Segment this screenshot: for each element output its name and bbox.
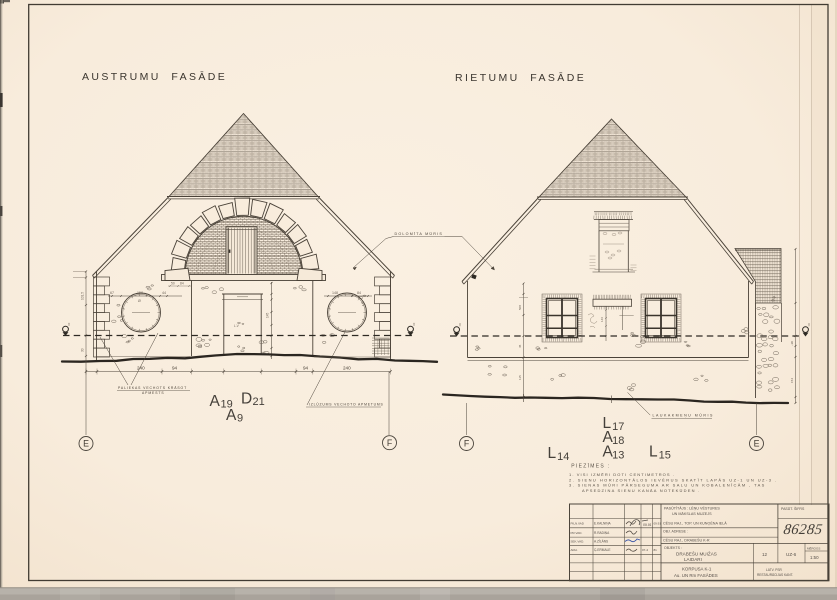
svg-text:94: 94 (303, 366, 309, 371)
svg-text:MĒROGS: MĒROGS (807, 547, 820, 551)
svg-text:R.RADIŅA: R.RADIŅA (594, 531, 610, 535)
svg-text:PASŪT. ŠIFRS: PASŪT. ŠIFRS (781, 506, 805, 511)
svg-text:09.91: 09.91 (643, 523, 652, 527)
svg-text:1. VISI IZMĒRI DOTI CENTIME: 1. VISI IZMĒRI DOTI CENTIMETROS . (569, 472, 675, 477)
svg-text:94: 94 (172, 366, 178, 371)
svg-text:DOLOMĪTA MŪRIS: DOLOMĪTA MŪRIS (395, 232, 444, 236)
svg-text:APSEDZINA SIENU KANĀA NOTEK: APSEDZINA SIENU KANĀA NOTEKŪDEN . (582, 488, 700, 493)
svg-text:9: 9 (237, 413, 243, 425)
svg-text:F: F (464, 439, 470, 449)
svg-text:81: 81 (654, 548, 658, 552)
svg-text:LAUKAKMEŅU MŪRIS: LAUKAKMEŅU MŪRIS (653, 414, 714, 418)
svg-text:APMESTS: APMESTS (142, 391, 165, 395)
svg-text:L: L (649, 444, 658, 461)
svg-text:KORPUSA K-1: KORPUSA K-1 (682, 567, 712, 572)
svg-text:A: A (210, 393, 221, 410)
svg-text:21: 21 (253, 396, 265, 408)
svg-text:18: 18 (612, 435, 624, 447)
svg-text:E.KALNIŅA: E.KALNIŅA (594, 521, 612, 525)
svg-text:145: 145 (266, 312, 270, 318)
svg-text:09.91: 09.91 (654, 521, 662, 525)
svg-text:13: 13 (612, 449, 624, 461)
svg-text:OBJ. ADRESE :: OBJ. ADRESE : (663, 530, 688, 534)
svg-text:14: 14 (557, 451, 569, 463)
svg-text:F: F (387, 438, 393, 448)
svg-text:OBJEKTS :: OBJEKTS : (664, 546, 682, 550)
svg-text:AUSTRUMU FASĀDE: AUSTRUMU FASĀDE (82, 71, 227, 83)
svg-text:LATV. PSR: LATV. PSR (766, 568, 782, 572)
svg-text:Au. UN Rm FASĀDES: Au. UN Rm FASĀDES (674, 573, 718, 578)
svg-text:44: 44 (162, 291, 166, 295)
svg-text:101.5: 101.5 (81, 292, 85, 300)
svg-text:67: 67 (110, 291, 114, 295)
svg-text:50: 50 (171, 282, 175, 286)
svg-text:IZLŪZUMS VECHOTO APMETUMS: IZLŪZUMS VECHOTO APMETUMS (309, 403, 384, 407)
svg-text:15: 15 (659, 449, 671, 461)
svg-text:UN MĀKSLAS MUZEJS: UN MĀKSLAS MUZEJS (672, 512, 712, 516)
svg-text:A.ZĪLĀNS: A.ZĪLĀNS (594, 540, 608, 544)
svg-text:A: A (226, 407, 237, 424)
svg-text:RESTAURĀCIJAS KANT.: RESTAURĀCIJAS KANT. (757, 573, 793, 577)
svg-text:CĒSU RAJ., TOP. UN KUNĢĒNA: CĒSU RAJ., TOP. UN KUNĢĒNA IELĀ (663, 522, 727, 526)
svg-text:±0: ±0 (458, 323, 462, 327)
svg-text:508: 508 (518, 305, 522, 310)
svg-text:L: L (548, 445, 557, 462)
svg-text:±0: ±0 (67, 322, 71, 326)
svg-text:Ģ.ERMALE: Ģ.ERMALE (594, 548, 610, 552)
svg-text:DRABEŠU MUIŽAS: DRABEŠU MUIŽAS (676, 550, 717, 557)
svg-text:86285: 86285 (782, 522, 823, 538)
svg-text:PASŪTĪTĀJS : LĒŅU VĒSTURES: PASŪTĪTĀJS : LĒŅU VĒSTURES (664, 507, 720, 511)
svg-text:17: 17 (612, 421, 624, 433)
svg-text:240: 240 (343, 366, 351, 371)
svg-text:SEK.VAD.: SEK.VAD. (571, 540, 585, 544)
svg-text:146: 146 (600, 317, 604, 322)
svg-text:115: 115 (518, 375, 522, 380)
svg-text:240: 240 (137, 366, 145, 371)
svg-text:12: 12 (762, 552, 768, 557)
svg-text:CĒSU RAJ., DRABEŠU K-R: CĒSU RAJ., DRABEŠU K-R (663, 538, 710, 543)
svg-text:Ø: Ø (138, 299, 141, 303)
svg-text:~90: ~90 (790, 341, 794, 346)
svg-text:PILN.VAD: PILN.VAD (571, 521, 585, 525)
svg-text:45: 45 (518, 344, 522, 348)
svg-text:ARH.: ARH. (571, 548, 578, 552)
svg-text:LAIDARI: LAIDARI (684, 557, 702, 562)
svg-text:PALIEKAS VECHOTS KRĀSOT: PALIEKAS VECHOTS KRĀSOT (118, 386, 187, 390)
svg-text:PR.VAD.: PR.VAD. (571, 531, 583, 535)
svg-text:±0: ±0 (807, 323, 811, 327)
svg-text:30: 30 (81, 348, 85, 352)
svg-text:1:50: 1:50 (810, 555, 819, 560)
svg-text:UZ-6: UZ-6 (786, 552, 797, 557)
svg-text:158: 158 (137, 291, 143, 295)
svg-text:148: 148 (332, 291, 338, 295)
svg-text:07-4: 07-4 (642, 548, 648, 552)
svg-text:84: 84 (357, 291, 361, 295)
svg-text:84: 84 (180, 282, 184, 286)
svg-text:E: E (754, 439, 760, 449)
svg-text:±0: ±0 (412, 322, 416, 326)
svg-text:PIEZĪMES :: PIEZĪMES : (571, 462, 610, 469)
svg-text:154: 154 (790, 378, 794, 383)
svg-text:RIETUMU FASĀDE: RIETUMU FASĀDE (455, 72, 586, 84)
svg-text:D: D (241, 390, 252, 407)
svg-text:E: E (83, 439, 89, 449)
